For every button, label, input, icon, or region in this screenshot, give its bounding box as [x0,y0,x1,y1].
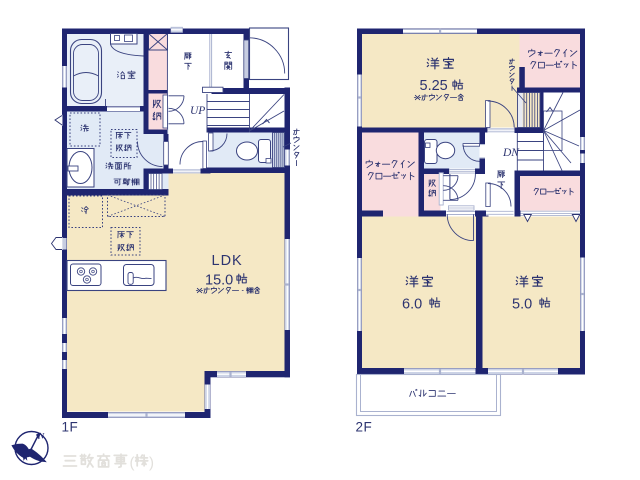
svg-text:LDK: LDK [212,253,243,269]
svg-text:(: ( [130,455,135,472]
svg-text:1F: 1F [62,420,79,435]
svg-text:2F: 2F [356,420,373,435]
svg-text:5.0: 5.0 [512,297,532,313]
svg-text:UP: UP [190,105,205,117]
svg-text:): ) [149,455,154,472]
svg-text:15.0: 15.0 [205,273,233,289]
svg-text:N: N [37,431,45,441]
svg-text:6.0: 6.0 [402,297,422,313]
svg-text:5.25: 5.25 [420,78,448,94]
svg-text:DN: DN [502,147,520,159]
